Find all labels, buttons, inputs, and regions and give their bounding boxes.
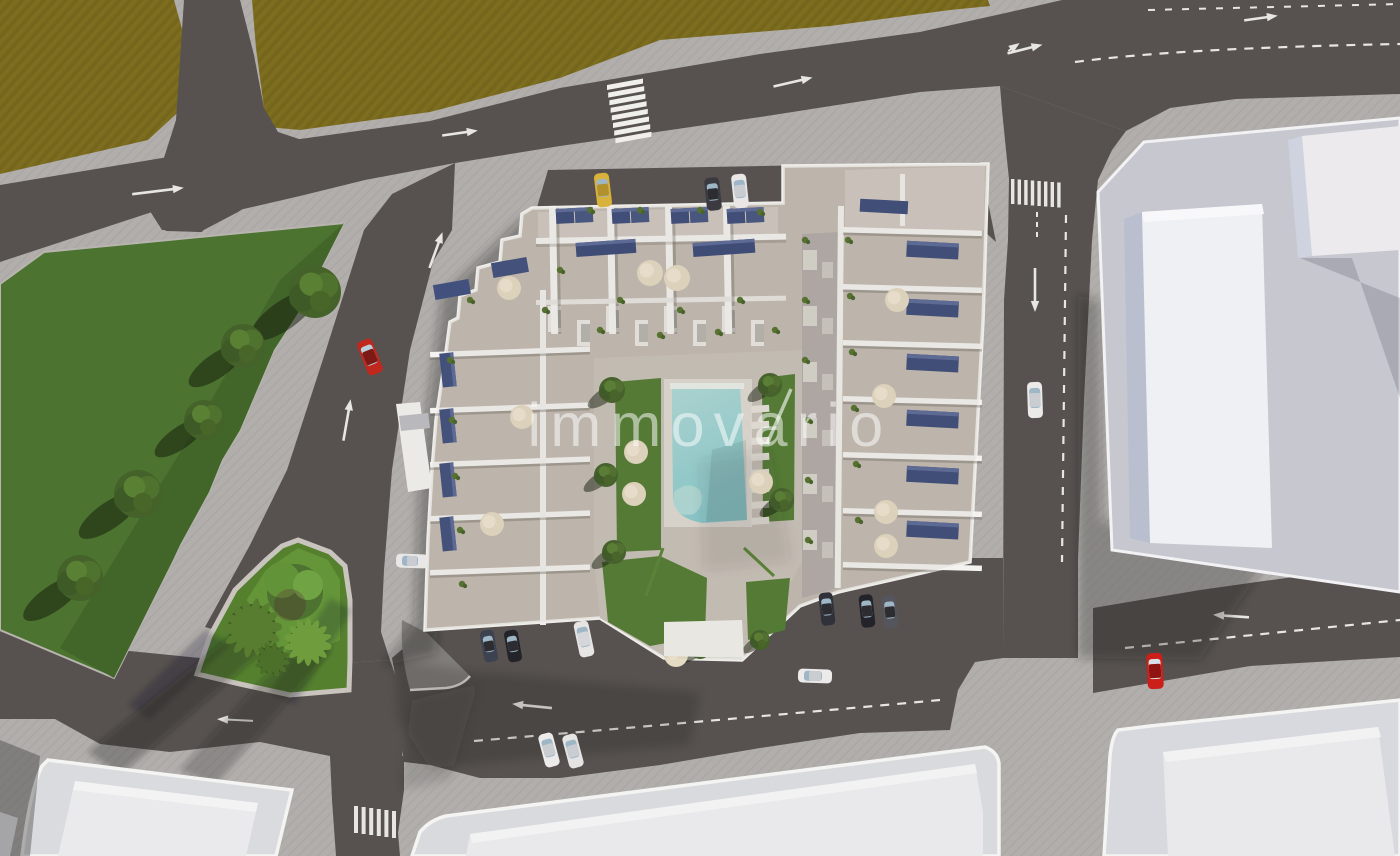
svg-text:immovario: immovario (527, 391, 892, 459)
